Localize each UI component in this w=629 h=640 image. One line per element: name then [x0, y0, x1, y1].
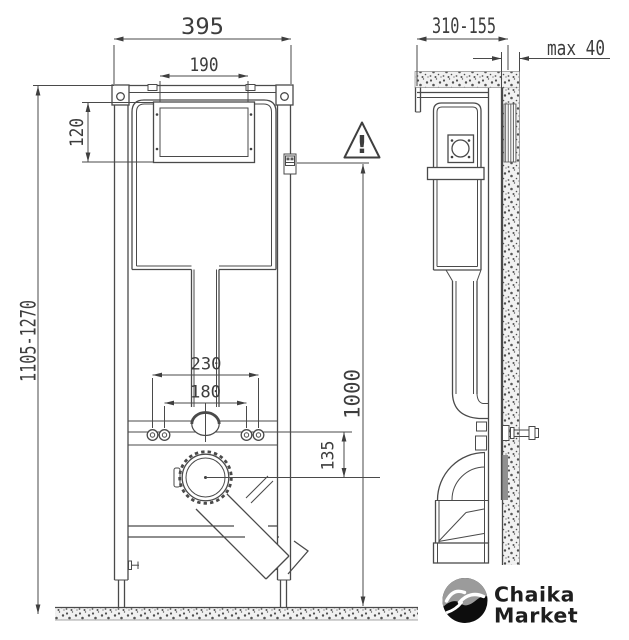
adjustable-foot-left [119, 580, 125, 607]
dim-depth-range-label: 310-155 [432, 14, 496, 38]
dim-total-width-label: 395 [181, 15, 224, 40]
corner-plate-right [276, 85, 293, 105]
dim-panel-height-label: 1000 [341, 369, 365, 419]
diagram-canvas: 395 190 120 1105-1270 [0, 0, 629, 640]
dim-plate-width: 190 [160, 54, 248, 102]
dim-outlet-offset-label: 135 [319, 441, 339, 471]
dim-plate-height: 120 [66, 103, 153, 163]
foot-screw-left [129, 561, 140, 570]
wall-rail-strip [503, 455, 509, 500]
adjustable-foot-right [281, 580, 287, 607]
dim-plate-height-label: 120 [66, 118, 88, 147]
side-view [415, 72, 539, 566]
brand-logo: Chaika Market [440, 576, 578, 628]
support-bracket-band [428, 168, 485, 180]
flush-plate [154, 102, 255, 163]
logo-text-line2: Market [494, 604, 578, 628]
dim-outlet-offset: 135 [206, 432, 381, 478]
dim-install-height: 1105-1270 [17, 86, 115, 615]
dimensions: 395 190 120 1105-1270 [17, 14, 611, 614]
technical-drawing: 395 190 120 1105-1270 [0, 0, 629, 640]
front-view [55, 85, 418, 621]
finish-layer-hatch [504, 104, 516, 162]
floor [55, 608, 418, 621]
warning-triangle-icon: ! [345, 123, 380, 160]
water-inlet-flange [448, 135, 474, 163]
dim-panel-height: 1000 [297, 163, 369, 606]
dim-install-height-label: 1105-1270 [17, 300, 41, 382]
dim-plate-width-label: 190 [190, 54, 219, 76]
top-support-band [415, 72, 520, 88]
dim-fixing-outer-label: 230 [191, 355, 222, 375]
warning-exclamation-mark: ! [356, 130, 367, 159]
rating-label [284, 154, 296, 174]
dim-max-finish-label: max 40 [547, 36, 605, 60]
dim-fixing-inner-label: 180 [190, 383, 221, 403]
